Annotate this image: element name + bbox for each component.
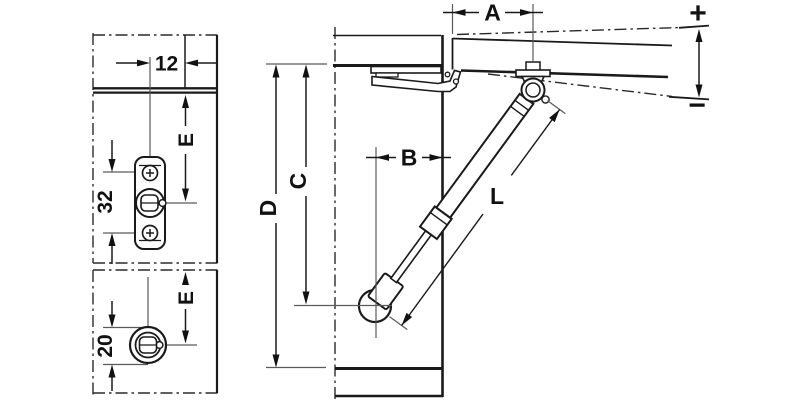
adjust-minus-label: − — [688, 89, 706, 122]
ball-socket-notch — [159, 200, 166, 207]
dim-20-label: 20 — [94, 334, 117, 357]
background — [0, 0, 800, 400]
bracket-plate — [516, 70, 550, 77]
hinge-plate — [371, 67, 441, 74]
dim-e-lower-label: E — [175, 291, 198, 305]
dim-12-label: 12 — [155, 53, 178, 76]
dim-d-label: D — [255, 200, 281, 217]
dim-a-label: A — [484, 0, 501, 26]
dim-b-label: B — [401, 145, 418, 171]
dim-c-label: C — [285, 173, 311, 190]
dim-32-label: 32 — [94, 190, 117, 213]
adjust-plus-label: + — [689, 0, 707, 30]
dim-e-upper-label: E — [175, 133, 198, 147]
hinge-pivot-2 — [454, 79, 459, 84]
drawing-canvas: 12 32 E — [0, 0, 800, 400]
hinge-plate-tab — [376, 73, 398, 77]
installation-drawing: 12 32 E — [0, 0, 800, 400]
hinge-pivot-1 — [445, 72, 450, 77]
dim-l-label: L — [490, 183, 504, 209]
